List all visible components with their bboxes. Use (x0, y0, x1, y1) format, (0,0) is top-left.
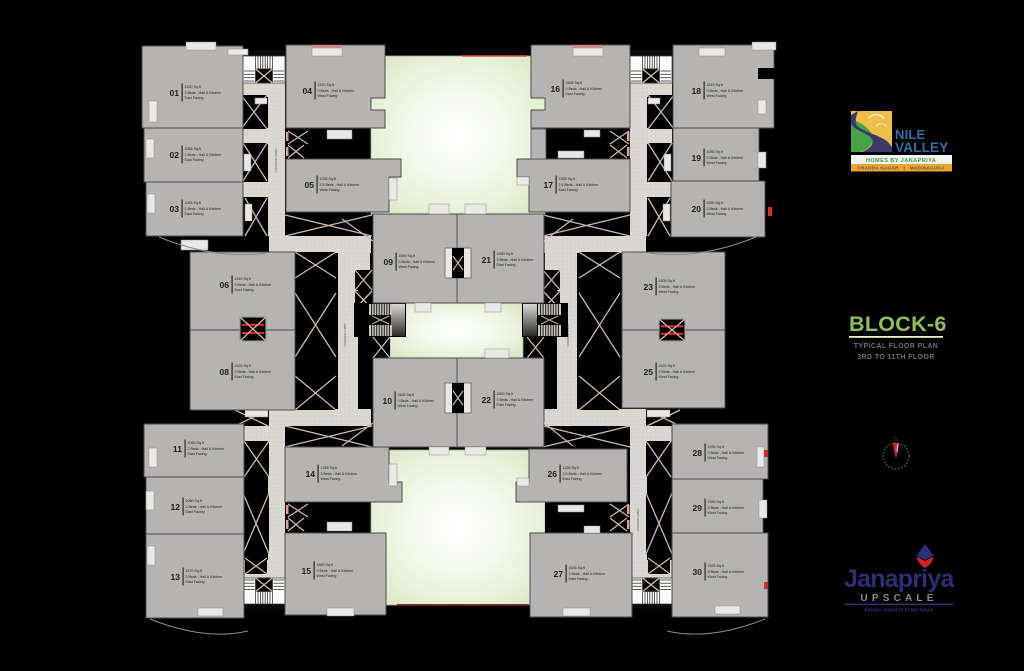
svg-text:1255 Sq.ft: 1255 Sq.ft (563, 466, 579, 470)
svg-text:East Facing: East Facing (497, 403, 516, 407)
svg-text:CORRIDOR LOBBY: CORRIDOR LOBBY (274, 148, 278, 172)
svg-text:1605 Sq.ft: 1605 Sq.ft (566, 81, 582, 85)
svg-text:East Facing: East Facing (186, 580, 205, 584)
svg-text:1050 Sq.ft: 1050 Sq.ft (708, 500, 724, 504)
svg-text:1605 Sq.ft: 1605 Sq.ft (659, 279, 675, 283)
svg-text:1255 Sq.ft: 1255 Sq.ft (320, 177, 336, 181)
svg-text:2 Beds , Hall & Kitchen: 2 Beds , Hall & Kitchen (707, 156, 744, 160)
svg-text:2 Beds , Hall & Kitchen: 2 Beds , Hall & Kitchen (708, 506, 745, 510)
svg-text:East Facing: East Facing (497, 263, 516, 267)
svg-text:1590 Sq.ft: 1590 Sq.ft (497, 252, 513, 256)
svg-text:West Facing: West Facing (708, 575, 728, 579)
svg-text:2 Beds , Hall & Kitchen: 2 Beds , Hall & Kitchen (707, 207, 744, 211)
svg-text:10: 10 (382, 396, 392, 406)
svg-text:3 Beds , Hall & Kitchen: 3 Beds , Hall & Kitchen (569, 572, 606, 576)
svg-text:1255 Sq.ft: 1255 Sq.ft (559, 177, 575, 181)
svg-text:3 Beds , Hall & Kitchen: 3 Beds , Hall & Kitchen (399, 260, 436, 264)
svg-text:3 Beds , Hall & Kitchen: 3 Beds , Hall & Kitchen (707, 89, 744, 93)
svg-text:3 Beds , Hall & Kitchen: 3 Beds , Hall & Kitchen (321, 472, 358, 476)
svg-text:05: 05 (304, 180, 314, 190)
svg-text:BLOCK-6: BLOCK-6 (849, 312, 947, 336)
svg-text:West Facing: West Facing (708, 511, 728, 515)
svg-text:2.5 Beds , Hall & Kitchen: 2.5 Beds , Hall & Kitchen (563, 472, 603, 476)
svg-text:3 Beds , Hall & Kitchen: 3 Beds , Hall & Kitchen (398, 399, 435, 403)
svg-text:3 Beds , Hall & Kitchen: 3 Beds , Hall & Kitchen (497, 258, 534, 262)
svg-text:1610 Sq.ft: 1610 Sq.ft (235, 277, 251, 281)
svg-text:30: 30 (692, 567, 702, 577)
svg-text:N: N (893, 436, 898, 443)
svg-text:1050 Sq.ft: 1050 Sq.ft (707, 150, 723, 154)
svg-text:1570 Sq.ft: 1570 Sq.ft (186, 569, 202, 573)
svg-text:17: 17 (543, 180, 553, 190)
svg-text:3 Beds , Hall & Kitchen: 3 Beds , Hall & Kitchen (497, 398, 534, 402)
svg-text:West Facing: West Facing (659, 375, 679, 379)
svg-text:2.5 Beds , Hall & Kitchen: 2.5 Beds , Hall & Kitchen (559, 183, 599, 187)
svg-text:01: 01 (169, 88, 179, 98)
svg-text:1095 Sq.ft: 1095 Sq.ft (708, 445, 724, 449)
svg-text:2 Beds , Hall & Kitchen: 2 Beds , Hall & Kitchen (708, 451, 745, 455)
svg-text:2.5 Beds , Hall & Kitchen: 2.5 Beds , Hall & Kitchen (320, 183, 360, 187)
svg-text:Always invested in the future: Always invested in the future (864, 608, 933, 614)
svg-text:23: 23 (643, 282, 653, 292)
svg-text:19: 19 (691, 153, 701, 163)
svg-text:West Facing: West Facing (707, 94, 727, 98)
svg-text:1060 Sq.ft: 1060 Sq.ft (186, 499, 202, 503)
svg-text:1055 Sq.ft: 1055 Sq.ft (185, 147, 201, 151)
svg-text:1060 Sq.ft: 1060 Sq.ft (188, 441, 204, 445)
svg-text:West Facing: West Facing (320, 188, 340, 192)
svg-text:3 Beds , Hall & Kitchen: 3 Beds , Hall & Kitchen (318, 89, 355, 93)
svg-text:HOMES BY JANAPRIYA: HOMES BY JANAPRIYA (866, 158, 936, 164)
svg-text:TYPICAL FLOOR PLAN: TYPICAL FLOOR PLAN (854, 343, 938, 350)
svg-text:12: 12 (170, 502, 180, 512)
svg-text:1570 Sq.ft: 1570 Sq.ft (318, 83, 334, 87)
svg-text:2 Beds , Hall & Kitchen: 2 Beds , Hall & Kitchen (185, 153, 222, 157)
svg-text:3 Beds , Hall & Kitchen: 3 Beds , Hall & Kitchen (235, 283, 272, 287)
svg-text:22: 22 (481, 395, 491, 405)
svg-text:1620 Sq.ft: 1620 Sq.ft (659, 364, 675, 368)
svg-text:CORRIDOR LOBBY: CORRIDOR LOBBY (343, 323, 347, 347)
svg-text:East Facing: East Facing (559, 188, 578, 192)
svg-text:1590 Sq.ft: 1590 Sq.ft (497, 392, 513, 396)
svg-text:1590 Sq.ft: 1590 Sq.ft (317, 563, 333, 567)
svg-text:VALLEY: VALLEY (895, 140, 948, 155)
svg-text:1255 Sq.ft: 1255 Sq.ft (321, 466, 337, 470)
svg-text:26: 26 (547, 469, 557, 479)
svg-text:East Facing: East Facing (566, 92, 585, 96)
svg-text:1635 Sq.ft: 1635 Sq.ft (569, 566, 585, 570)
svg-text:1525 Sq.ft: 1525 Sq.ft (708, 564, 724, 568)
svg-text:West Facing: West Facing (708, 456, 728, 460)
svg-text:27: 27 (553, 569, 563, 579)
svg-text:UPSCALE: UPSCALE (860, 593, 937, 604)
svg-text:18: 18 (691, 86, 701, 96)
svg-text:East Facing: East Facing (186, 510, 205, 514)
svg-text:West Facing: West Facing (707, 161, 727, 165)
svg-text:2 Beds , Hall & Kitchen: 2 Beds , Hall & Kitchen (185, 207, 222, 211)
svg-text:East Facing: East Facing (569, 577, 588, 581)
svg-text:1625 Sq.ft: 1625 Sq.ft (398, 393, 414, 397)
svg-text:21: 21 (481, 255, 491, 265)
svg-text:East Facing: East Facing (235, 375, 254, 379)
svg-text:13: 13 (170, 572, 180, 582)
svg-text:East Facing: East Facing (235, 288, 254, 292)
svg-text:1055 Sq.ft: 1055 Sq.ft (185, 201, 201, 205)
svg-text:04: 04 (302, 86, 312, 96)
svg-text:16: 16 (550, 84, 560, 94)
svg-text:3 Beds , Hall & Kitchen: 3 Beds , Hall & Kitchen (659, 285, 696, 289)
svg-text:03: 03 (169, 204, 179, 214)
svg-text:1590 Sq.ft: 1590 Sq.ft (399, 254, 415, 258)
svg-text:09: 09 (383, 257, 393, 267)
svg-text:2 Beds , Hall & Kitchen: 2 Beds , Hall & Kitchen (186, 505, 223, 509)
svg-text:3 Beds , Hall & Kitchen: 3 Beds , Hall & Kitchen (566, 87, 603, 91)
svg-text:3 Beds , Hall & Kitchen: 3 Beds , Hall & Kitchen (659, 370, 696, 374)
svg-text:02: 02 (169, 150, 179, 160)
svg-text:East Facing: East Facing (563, 477, 582, 481)
svg-text:25: 25 (643, 367, 653, 377)
svg-text:West Facing: West Facing (399, 265, 419, 269)
svg-text:West Facing: West Facing (707, 212, 727, 216)
svg-text:East Facing: East Facing (185, 96, 204, 100)
svg-text:11: 11 (173, 444, 182, 454)
svg-text:3 Beds , Hall & Kitchen: 3 Beds , Hall & Kitchen (186, 575, 223, 579)
svg-text:3 Beds , Hall & Kitchen: 3 Beds , Hall & Kitchen (317, 569, 354, 573)
svg-text:08: 08 (219, 367, 229, 377)
svg-text:Janapriya: Janapriya (844, 565, 955, 593)
svg-text:3 Beds , Hall & Kitchen: 3 Beds , Hall & Kitchen (185, 91, 222, 95)
svg-text:1625 Sq.ft: 1625 Sq.ft (235, 364, 251, 368)
svg-text:East Facing: East Facing (188, 452, 207, 456)
svg-text:20: 20 (691, 204, 701, 214)
svg-text:28: 28 (692, 448, 702, 458)
svg-text:3RD TO 11TH FLOOR: 3RD TO 11TH FLOOR (857, 354, 934, 361)
svg-text:3 Beds , Hall & Kitchen: 3 Beds , Hall & Kitchen (708, 570, 745, 574)
svg-text:15: 15 (301, 566, 311, 576)
svg-text:14: 14 (305, 469, 315, 479)
svg-text:CORRIDOR LOBBY: CORRIDOR LOBBY (636, 508, 640, 532)
svg-text:West Facing: West Facing (321, 477, 341, 481)
svg-text:29: 29 (692, 503, 702, 513)
svg-text:West Facing: West Facing (398, 404, 418, 408)
svg-text:3 Beds , Hall & Kitchen: 3 Beds , Hall & Kitchen (235, 370, 272, 374)
svg-text:West Facing: West Facing (317, 574, 337, 578)
svg-text:West Facing: West Facing (659, 290, 679, 294)
svg-text:East Facing: East Facing (185, 158, 204, 162)
svg-text:1520 Sq.ft: 1520 Sq.ft (185, 85, 201, 89)
svg-text:West Facing: West Facing (318, 94, 338, 98)
svg-text:1060 Sq.ft: 1060 Sq.ft (707, 201, 723, 205)
svg-text:East Facing: East Facing (185, 212, 204, 216)
svg-text:1515 Sq.ft: 1515 Sq.ft (707, 83, 723, 87)
svg-text:CHANDA NAGAR | MADINAGUDA: CHANDA NAGAR | MADINAGUDA (857, 166, 945, 171)
svg-text:06: 06 (219, 280, 229, 290)
svg-text:2 Beds , Hall & Kitchen: 2 Beds , Hall & Kitchen (188, 447, 225, 451)
